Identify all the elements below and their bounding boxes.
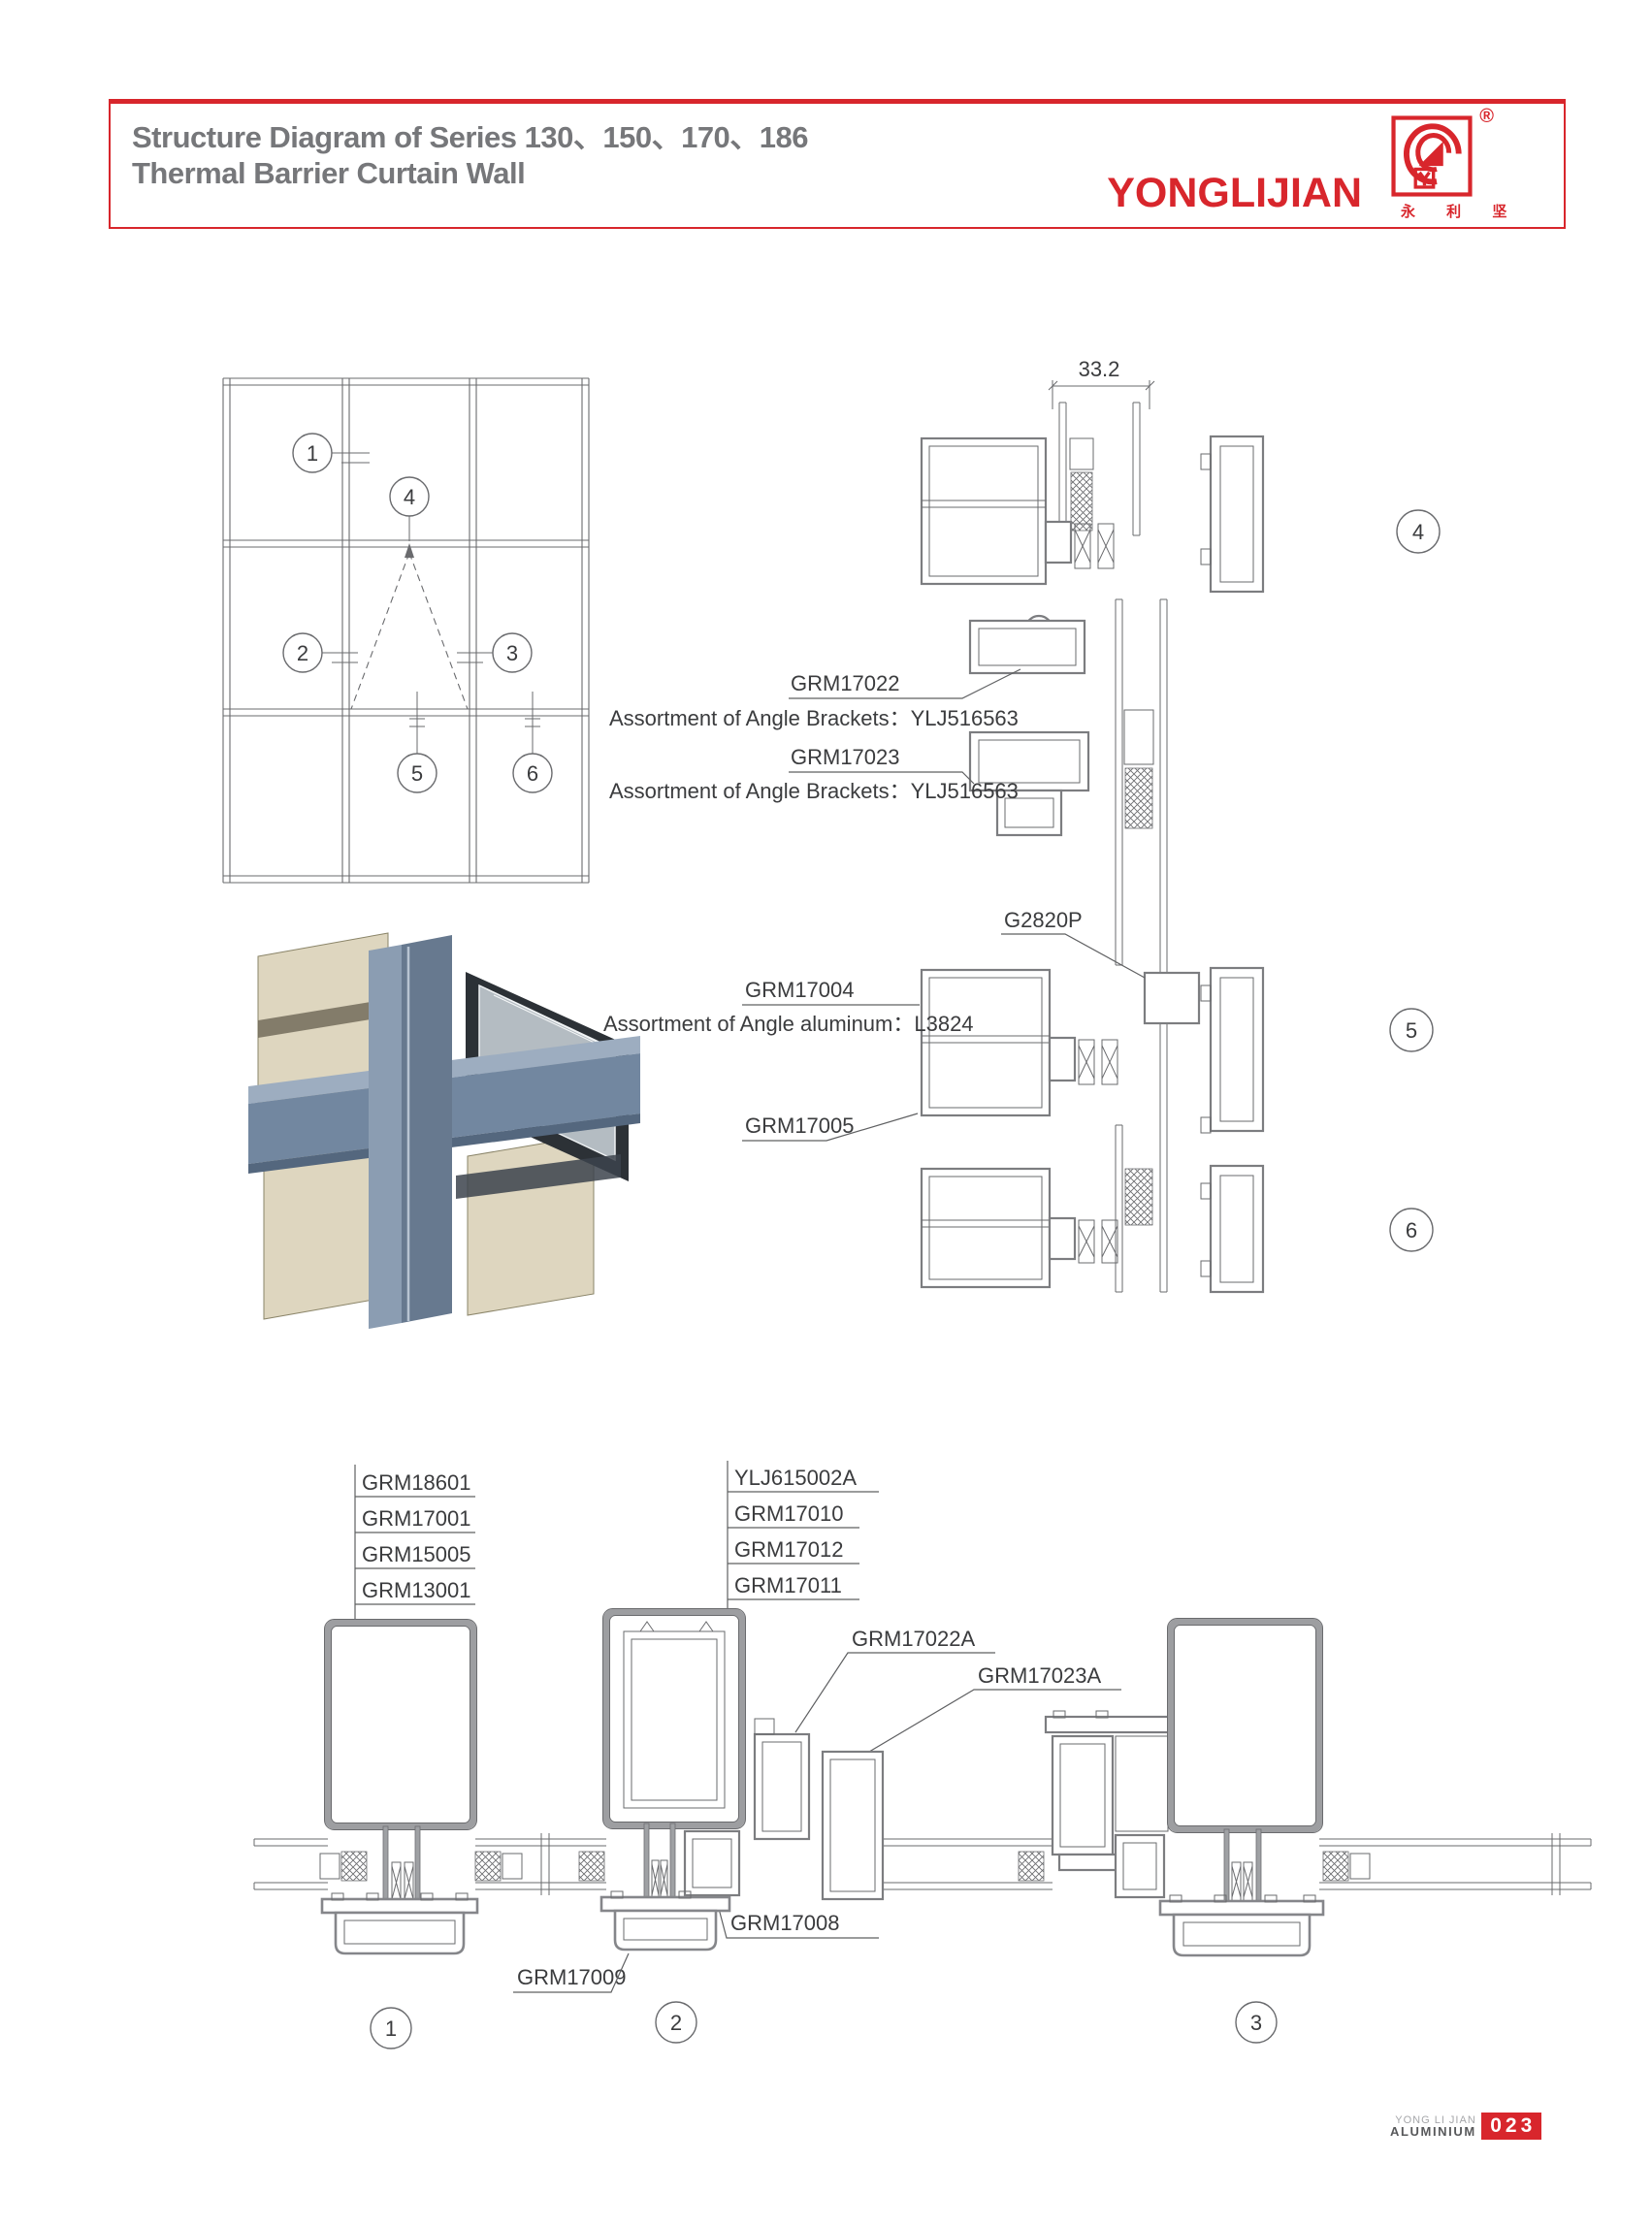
elevation-callout-3: 3 bbox=[493, 633, 532, 672]
label-grm17004: GRM17004 bbox=[745, 978, 855, 1002]
footer-company-division: ALUMINIUM bbox=[1390, 2126, 1476, 2138]
label-grm18601: GRM18601 bbox=[362, 1470, 471, 1495]
thermal-struts bbox=[1079, 1220, 1118, 1263]
elevation-callout-2: 2 bbox=[283, 633, 322, 672]
plan-glass-band bbox=[254, 1833, 1591, 1895]
footer: YONG LI JIAN ALUMINIUM 023 bbox=[1390, 2114, 1541, 2140]
window-apex-arrow bbox=[405, 543, 414, 558]
plan-detail-2 bbox=[601, 1609, 883, 1951]
callout-number: 5 bbox=[1406, 1018, 1417, 1043]
label-ylj615002a: YLJ615002A bbox=[734, 1466, 857, 1490]
label-grm17022: GRM17022 bbox=[791, 671, 900, 695]
assembly-3d-render bbox=[248, 933, 640, 1329]
label-grm17001: GRM17001 bbox=[362, 1506, 471, 1531]
callout-number: 5 bbox=[411, 761, 423, 786]
page-number-badge: 023 bbox=[1481, 2113, 1541, 2140]
catalog-page: { "header": { "title_line1": "Structure … bbox=[0, 0, 1652, 2226]
callout-number: 2 bbox=[670, 2011, 682, 2035]
callout-number: 4 bbox=[404, 485, 415, 509]
label-grm15005: GRM15005 bbox=[362, 1542, 471, 1566]
label-grm17012: GRM17012 bbox=[734, 1537, 844, 1562]
label-angle-brackets-1: Assortment of Angle Brackets：YLJ516563 bbox=[609, 706, 1019, 730]
label-angle-brackets-2: Assortment of Angle Brackets：YLJ516563 bbox=[609, 779, 1019, 803]
label-g2820p: G2820P bbox=[1004, 908, 1083, 932]
footer-company: YONG LI JIAN ALUMINIUM bbox=[1390, 2114, 1476, 2138]
section-callout-4: 4 bbox=[1397, 510, 1440, 553]
label-grm17022a: GRM17022A bbox=[852, 1627, 976, 1651]
callout-number: 6 bbox=[527, 761, 538, 786]
label-grm17008: GRM17008 bbox=[730, 1911, 840, 1935]
elevation-callout-4: 4 bbox=[390, 477, 429, 516]
callout-number: 3 bbox=[1250, 2011, 1262, 2035]
callout-number: 6 bbox=[1406, 1218, 1417, 1242]
open-window-dashes bbox=[351, 553, 468, 709]
callout-number: 1 bbox=[307, 441, 318, 466]
section-callout-5: 5 bbox=[1390, 1009, 1433, 1051]
section-detail-6 bbox=[922, 1166, 1263, 1292]
callout-number: 1 bbox=[385, 2016, 397, 2041]
plan-detail-1 bbox=[322, 1620, 477, 1954]
label-grm13001: GRM13001 bbox=[362, 1578, 471, 1602]
callout-number: 4 bbox=[1412, 520, 1424, 544]
section-detail-4: 33.2 bbox=[922, 357, 1263, 1292]
g2820p-block bbox=[1145, 973, 1199, 1023]
structure-diagram-sheet: 1 4 2 3 5 6 33.2 bbox=[0, 0, 1652, 2226]
elevation-callout-5: 5 bbox=[398, 754, 437, 792]
callout-number: 3 bbox=[506, 641, 518, 665]
elevation-callout-6: 6 bbox=[513, 754, 552, 792]
label-grm17011: GRM17011 bbox=[734, 1573, 842, 1597]
grm17023a-profile bbox=[823, 1752, 883, 1899]
plan-callout-1: 1 bbox=[371, 2008, 411, 2049]
label-grm17023a: GRM17023A bbox=[978, 1663, 1102, 1688]
thermal-struts bbox=[1079, 1040, 1118, 1084]
elevation-callout-1: 1 bbox=[293, 434, 332, 472]
plan-callout-2: 2 bbox=[656, 2002, 696, 2043]
label-grm17023: GRM17023 bbox=[791, 745, 900, 769]
elevation-grid: 1 4 2 3 5 6 bbox=[223, 378, 589, 883]
label-grm17009: GRM17009 bbox=[517, 1965, 627, 1989]
label-angle-aluminum: Assortment of Angle aluminum：L3824 bbox=[603, 1012, 974, 1036]
callout-number: 2 bbox=[297, 641, 308, 665]
label-grm17010: GRM17010 bbox=[734, 1501, 844, 1526]
dimension-33-2: 33.2 bbox=[1079, 357, 1120, 381]
plan-callout-3: 3 bbox=[1236, 2002, 1277, 2043]
section-callout-6: 6 bbox=[1390, 1209, 1433, 1251]
label-grm17005: GRM17005 bbox=[745, 1113, 855, 1138]
